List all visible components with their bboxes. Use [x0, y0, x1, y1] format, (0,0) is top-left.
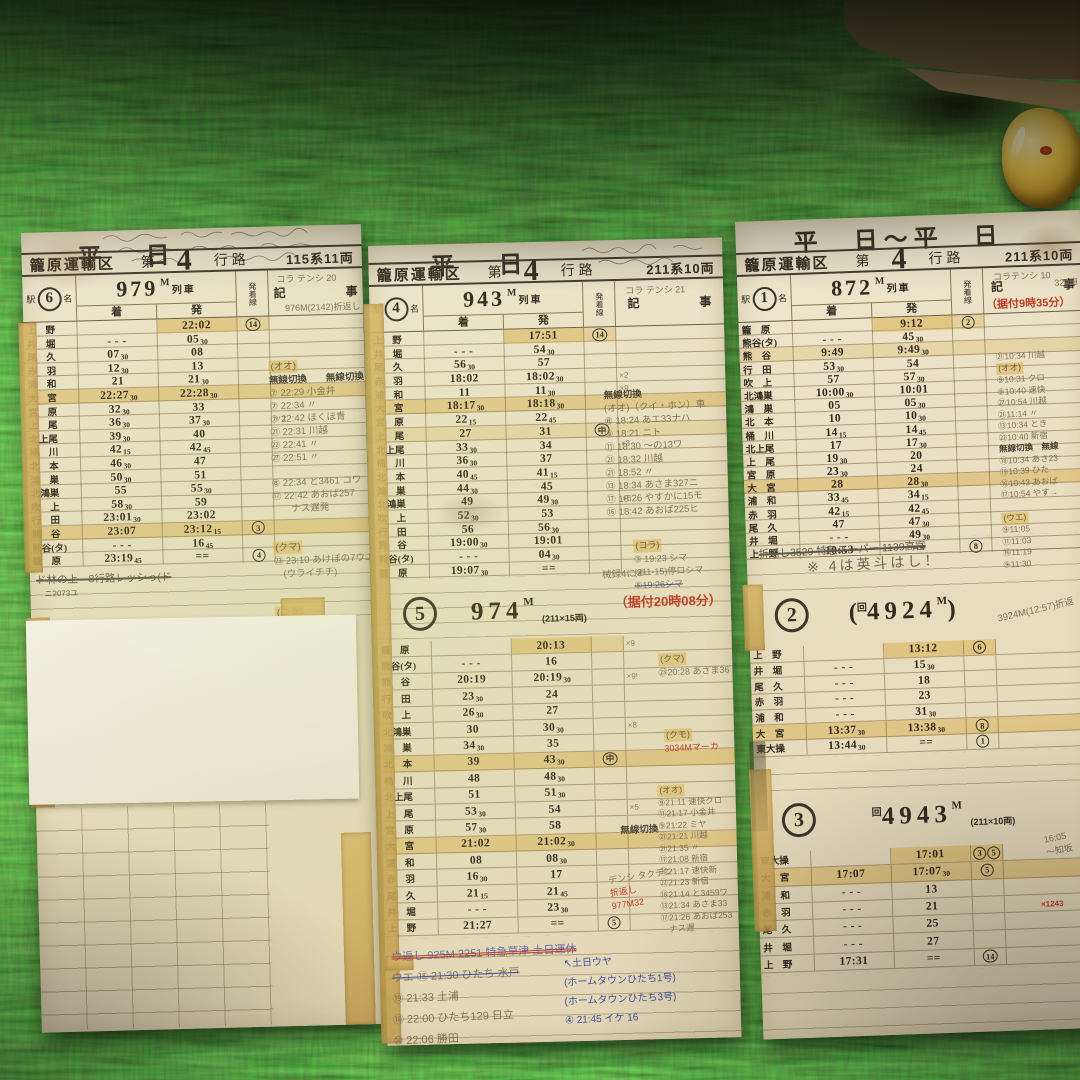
tiny-note: ニ2073ユ [44, 588, 78, 600]
track-col-header: 発着線 [583, 281, 616, 327]
station-col-header: 駅 1 名 [737, 275, 793, 322]
route-number: 4 [176, 246, 192, 276]
timetable-4943M: 東大操 17:01 35 大 宮 17:07 17:0730 5 浦 和 [757, 841, 1080, 974]
train-header: 943 M 列車 着発 [423, 282, 584, 331]
depot-name: 籠原運輸区 [30, 252, 116, 275]
red-tiny-note: ×1243 [1041, 899, 1064, 909]
station-col-header: 駅 6 名 [22, 276, 77, 322]
depot-name: 籠原運輸区 [744, 251, 830, 275]
kora-note-group: (コラ)③ 19:23 シマ(211-15)停ロシマ⑤19:26シマ [633, 537, 728, 591]
remarks-header: コラテンシ 10 記事 320車 （据付9時35分） [983, 265, 1080, 313]
gold-foil-sweet [1002, 108, 1080, 208]
red-marker-note: (クモ)3034Mマーカ [664, 728, 719, 755]
depot-name: 籠原運輸区 [376, 262, 462, 285]
run-number-badge: 1 [752, 286, 777, 311]
empty-grid [36, 803, 274, 1031]
run-number-badge: 6 [37, 286, 62, 311]
pencil-note: 械録4に④ [602, 567, 645, 582]
red-time-note: （据付20時08分） [615, 589, 722, 611]
red-time-note: （据付9時35分） [986, 293, 1071, 312]
rolling-stock: 211系10両 [1005, 244, 1074, 265]
photo-of-train-timetable-cards: 平 日 籠原運輸区 第 4 行路 115系11両 駅 6 名 979 M 列車 … [0, 0, 1080, 1080]
tape-strip [743, 584, 765, 651]
remarks-header: コラ テンシ 21 記事 [615, 278, 724, 326]
timetable-card-right: 平 日～平 日 籠原運輸区 第 4 行路 211系10両 駅 1 名 872 M… [735, 210, 1080, 1040]
dai-label: 第 [141, 252, 156, 272]
track-col-header: 発着線 [236, 271, 269, 317]
white-paper-slip [26, 615, 359, 805]
koro-label: 行路 [214, 249, 251, 270]
tape-strip [341, 832, 376, 1025]
pencil-note: 3924M(12:57)折返 [996, 595, 1075, 626]
section-974M-header: 5 974 M (211×15両) [403, 593, 587, 631]
run-number-badge: 4 [384, 297, 409, 322]
kuma-note: (クマ)㉓20:28 あさま36 [658, 651, 730, 679]
track-col-header: 発着線 [951, 268, 985, 314]
train-header: 979 M 列車 着発 [76, 271, 237, 320]
rolling-stock: 115系11両 [286, 247, 354, 268]
margin-notes-974: (オオ)⑨21:11 速快クロ⑪21:17 小金井⑨21:22 ミヤ㉑21:21… [657, 783, 739, 934]
timetable-card-middle: 平 日 籠原運輸区 第 4 行路 211系10両 駅 4 名 943 M 列車 … [368, 237, 741, 1045]
train-header: 872 M 列車 着発 [791, 269, 952, 320]
route-number: 4 [523, 256, 539, 286]
rolling-stock: 211系10両 [646, 257, 715, 278]
route-number: 4 [891, 244, 907, 275]
blue-annotations: ↖土日ウヤ(ホームタウンひたち1号)(ホームタウンひたち3号)④ 21:45 イ… [563, 951, 677, 1030]
section-4943M-header: 3 回 4943 M (211×10両) [781, 796, 1015, 838]
timetable-4924M: 上 野 13:12 6 井 堀 - - - 1530 尾 久 - - - [750, 636, 1080, 758]
margin-notes: 無線切換(オオ)（クイ・ホン）車⑧ 18:24 あエ33ナハ⑨ 18:21 ニト… [604, 385, 727, 518]
section-4924M-header: 2 ( 回 4924 M ) [774, 593, 956, 633]
musen-label: 無線切換 [620, 823, 659, 838]
timetable-card-left: 平 日 籠原運輸区 第 4 行路 115系11両 駅 6 名 979 M 列車 … [21, 224, 382, 1033]
remarks-header: コラ テンシ 20 記事 976M(2142)折返し [268, 268, 363, 315]
bottom-handwritten-notes: ウ返し 925M 2251 特急草津 土日運休ウエ ⑱ 21:30 ひたち 水戸… [391, 941, 579, 1050]
